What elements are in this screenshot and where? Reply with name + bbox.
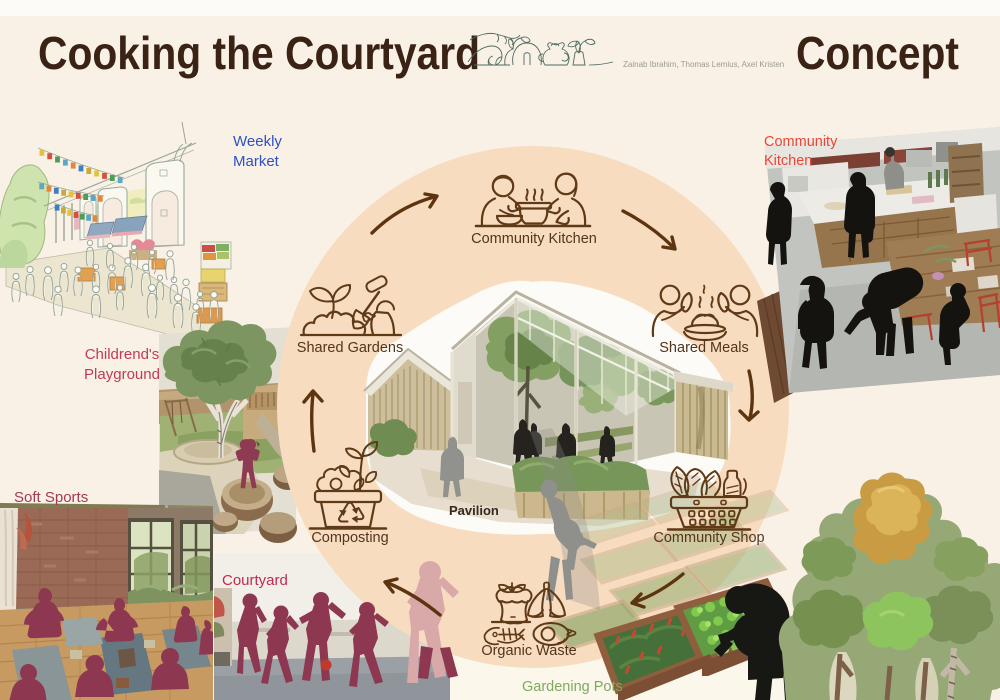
svg-text:Market: Market <box>233 153 280 170</box>
svg-text:Concept: Concept <box>796 27 959 79</box>
svg-text:Playground: Playground <box>84 366 160 383</box>
svg-text:Community Kitchen: Community Kitchen <box>471 231 597 247</box>
svg-text:Cooking the Courtyard: Cooking the Courtyard <box>38 27 480 79</box>
svg-text:Zainab Ibrahim, Thomas Lemius,: Zainab Ibrahim, Thomas Lemius, Axel Kris… <box>623 60 784 69</box>
svg-text:Soft Sports: Soft Sports <box>14 489 88 506</box>
svg-text:Organic Waste: Organic Waste <box>481 643 576 659</box>
svg-text:Pavilion: Pavilion <box>449 503 499 518</box>
svg-text:Courtyard: Courtyard <box>222 572 288 589</box>
svg-text:Kitchen: Kitchen <box>764 153 812 169</box>
svg-text:Shared Gardens: Shared Gardens <box>297 340 403 356</box>
svg-text:Composting: Composting <box>311 530 388 546</box>
svg-text:Community: Community <box>764 134 838 150</box>
svg-text:Gardening Pots: Gardening Pots <box>522 679 623 695</box>
svg-text:Community Shop: Community Shop <box>653 530 764 546</box>
svg-text:Childrend's: Childrend's <box>85 346 160 363</box>
svg-text:Weekly: Weekly <box>233 133 282 150</box>
svg-text:Shared Meals: Shared Meals <box>659 340 748 356</box>
